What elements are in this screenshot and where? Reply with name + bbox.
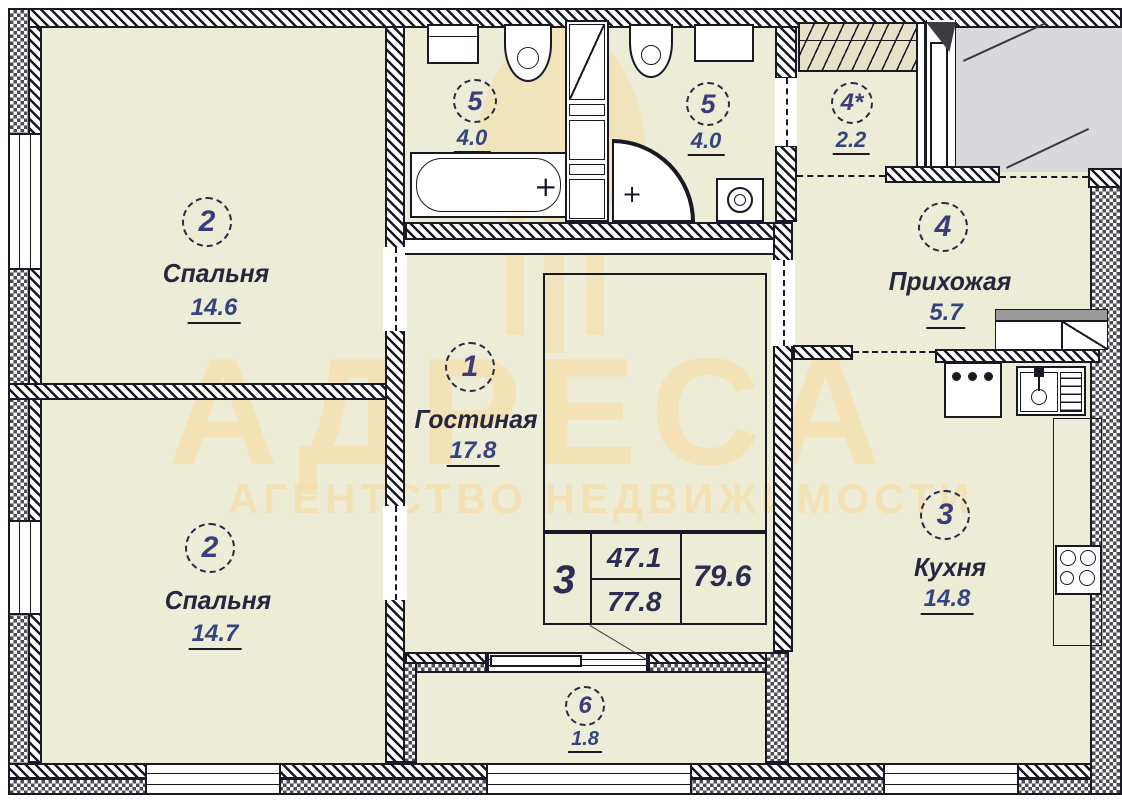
room-number-bedroom-bottom: 2: [185, 523, 235, 573]
kitchen-counter-right: [1053, 418, 1102, 646]
wall-lobby-bottom: [885, 166, 1000, 183]
room-area-bedroom-bottom: 14.7: [189, 620, 242, 648]
living-zone-rect: [543, 273, 767, 532]
room-name-bedroom-bottom: Спальня: [165, 585, 271, 616]
room-number: 6: [578, 692, 591, 720]
room-number-wardrobe: 4*: [831, 82, 873, 124]
room-number: 1: [462, 350, 479, 384]
wall-balcony-left: [403, 662, 417, 763]
area-value: 14.6: [188, 294, 241, 324]
door-opening-dash: [783, 260, 785, 346]
kitchen-stove: [944, 362, 1002, 418]
room-number: 4: [935, 210, 952, 244]
stove-burner: [968, 372, 977, 381]
bathtub-tap: +: [534, 170, 557, 203]
room-number-hallway: 4: [918, 202, 968, 252]
wall-balcony-right: [765, 652, 789, 763]
kitchen-drain-rack: [1060, 372, 1082, 412]
opening-hallway-kitchen: [853, 351, 935, 353]
door-opening-bedroom-top: [383, 247, 407, 331]
floor-plan: АДРЕСА АГЕНТСТВО НЕДВИЖИМОСТИ: [0, 0, 1122, 800]
window-bedroom-top-left: [8, 133, 42, 270]
room-area-bathroom-left: 4.0: [454, 125, 491, 151]
room-number: 5: [467, 86, 482, 117]
wall-hallway-kitchen-a: [793, 345, 853, 360]
door-opening-bedroom-bottom: [383, 506, 407, 600]
cooktop-burner: [1060, 550, 1076, 566]
area-value: 2.2: [833, 127, 870, 155]
area-value: 5.7: [926, 299, 965, 329]
room-name-kitchen: Кухня: [914, 552, 986, 583]
balcony-door-leaf: [490, 655, 582, 667]
entrance-door-leaf: [930, 42, 948, 168]
table-divider: [680, 534, 682, 623]
stove-burner: [984, 372, 993, 381]
entrance-lobby-fill: [953, 20, 1122, 172]
rooms-count: 3: [553, 558, 575, 603]
kitchen-cabinet-corner: [1062, 321, 1108, 350]
exterior-wall-left-outer: [8, 8, 30, 795]
area-value: 14.7: [189, 620, 242, 650]
table-divider: [590, 578, 680, 580]
room-name-living: Гостиная: [414, 404, 537, 435]
room-number-kitchen: 3: [920, 490, 970, 540]
corridor-strip: [405, 240, 773, 255]
wardrobe-rail-bar: [798, 40, 918, 41]
room-number: 3: [937, 498, 954, 532]
cooktop-burner: [1079, 570, 1095, 586]
room-area-balcony: 1.8: [568, 728, 602, 751]
wall-bathrooms-bottom: [405, 222, 793, 240]
room-number-bedroom-top: 2: [182, 197, 232, 247]
area-value: 1.8: [568, 728, 602, 753]
room-number: 5: [700, 89, 715, 120]
wall-central-vertical: [385, 26, 405, 763]
room-number-living: 1: [445, 342, 495, 392]
sink-drain: [641, 45, 661, 65]
corner-shower-base: [612, 220, 695, 222]
door-opening-bathroom-right: [775, 77, 797, 147]
window-bedroom-bottom: [145, 763, 281, 795]
wall-between-bedrooms: [8, 383, 387, 400]
washing-machine-drum-inner: [734, 194, 746, 206]
window-kitchen-bottom: [883, 763, 1019, 795]
total-area: 77.8: [607, 586, 662, 618]
shaft-duct: [569, 164, 605, 175]
area-value: 4.0: [454, 125, 491, 153]
room-area-living: 17.8: [447, 437, 500, 465]
area-value: 17.8: [447, 437, 500, 467]
room-number-bathroom-left: 5: [453, 79, 497, 123]
shower-tap: +: [622, 180, 642, 208]
shaft-duct: [569, 24, 605, 100]
door-opening-dash: [786, 78, 788, 146]
washing-machine-line: [427, 36, 479, 37]
wardrobe-rail: [798, 22, 918, 72]
room-number: 2: [199, 205, 216, 239]
kitchen-faucet: [1034, 368, 1044, 377]
living-area: 47.1: [607, 542, 662, 574]
summary-table: 3 47.1 77.8 79.6: [543, 532, 767, 625]
wall-hallway-kitchen-b: [935, 349, 1100, 363]
kitchen-sink-drain: [1031, 389, 1047, 405]
wall-living-balcony-right-outer: [648, 662, 775, 673]
corner-shower-side: [612, 139, 614, 222]
door-opening-dash: [395, 247, 397, 331]
room-number-bathroom-right: 5: [686, 82, 730, 126]
room-area-wardrobe: 2.2: [833, 127, 870, 153]
stove-burner: [952, 372, 961, 381]
window-balcony-bottom: [486, 763, 692, 795]
shaft-duct: [569, 120, 605, 160]
cooktop-burner: [1080, 550, 1096, 566]
bathroom-cabinet: [694, 24, 754, 62]
room-number-balcony: 6: [565, 686, 605, 726]
wall-lobby-corner: [1088, 168, 1122, 188]
room-area-kitchen: 14.8: [921, 585, 974, 613]
window-bedroom-bottom-left: [8, 520, 42, 615]
kitchen-cabinet: [995, 321, 1062, 350]
shaft-duct: [569, 179, 605, 219]
area-value: 4.0: [688, 128, 725, 156]
room-area-bathroom-right: 4.0: [688, 128, 725, 154]
room-area-bedroom-top: 14.6: [188, 294, 241, 322]
door-opening-living-hallway: [771, 260, 795, 346]
shaft-duct: [569, 104, 605, 116]
area-with-balcony: 79.6: [693, 560, 751, 594]
sink-drain: [517, 47, 539, 69]
room-area-hallway: 5.7: [926, 299, 965, 327]
washing-machine: [427, 24, 479, 64]
wall-living-balcony-left-outer: [405, 662, 487, 673]
door-opening-dash: [395, 506, 397, 600]
entrance-opening-dash: [1000, 176, 1088, 178]
room-name-bedroom-top: Спальня: [163, 258, 269, 289]
room-number: 4*: [841, 89, 864, 117]
room-number: 2: [202, 531, 219, 565]
area-value: 14.8: [921, 585, 974, 615]
opening-wardrobe-hallway: [797, 175, 885, 177]
cooktop-burner: [1060, 571, 1074, 585]
room-name-hallway: Прихожая: [889, 266, 1012, 297]
kitchen-counter-top: [995, 309, 1108, 321]
